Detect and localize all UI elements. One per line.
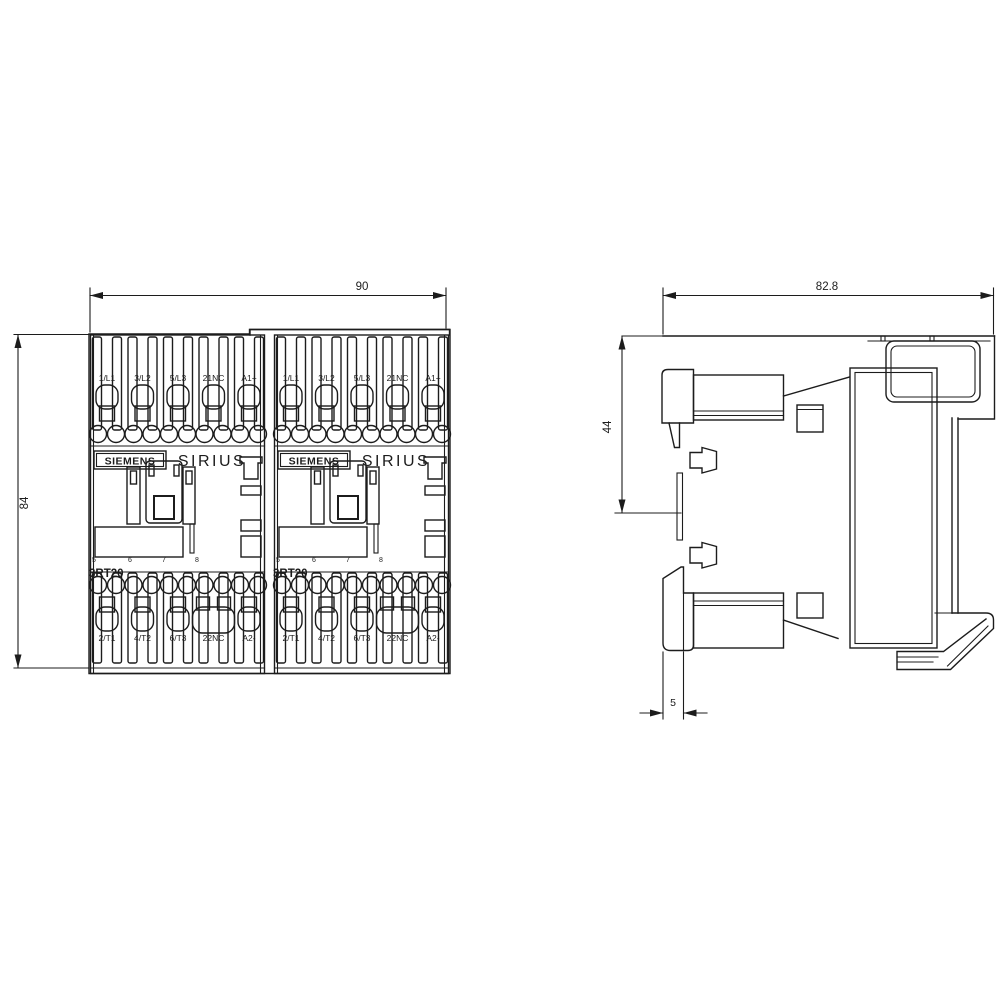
contactor-unit-1: 1/L1 3/L2 5/L3 21NC: [89, 335, 267, 674]
side-view: [662, 336, 995, 670]
terminal-label: 6/T3: [169, 633, 186, 643]
top-terminal-A1plus: A1+: [232, 337, 267, 443]
top-terminal-1L1: 1/L1: [90, 337, 125, 443]
bottom-terminal-A2minus: A2-: [232, 573, 267, 663]
terminal-label: A1+: [241, 373, 256, 383]
top-terminal-21NC: 21NC: [196, 337, 231, 443]
model-text: 3RT20: [89, 568, 124, 580]
dimension-height-84: 84: [14, 335, 88, 669]
pin-number: 7: [162, 557, 166, 564]
dimension-rail-value: 44: [602, 420, 614, 433]
din-clip-upper: [662, 370, 694, 424]
contactor-unit-2: [273, 335, 451, 674]
bottom-terminal-22NC: 22NC: [193, 573, 235, 663]
dimension-depth-value: 82.8: [816, 281, 838, 293]
terminal-label: 3/L2: [134, 373, 151, 383]
dimensions: 90 84 82.8 44 5: [14, 281, 994, 719]
terminal-label: 1/L1: [99, 373, 116, 383]
faceplate: SIEMENS SIRIUS 5 6 7 8: [89, 451, 262, 580]
dimension-foot-5: 5: [640, 652, 707, 719]
pin-number: 6: [128, 557, 132, 564]
top-terminal-5L3: 5/L3: [161, 337, 196, 443]
terminal-label: 5/L3: [170, 373, 187, 383]
side-main-body: [850, 368, 958, 648]
terminal-label: 21NC: [203, 373, 225, 383]
dimension-width-value: 90: [356, 281, 369, 293]
bottom-terminal-2T1: 2/T1: [90, 573, 125, 663]
pin-number: 8: [195, 557, 199, 564]
mounting-plate: [662, 370, 850, 651]
dimension-depth-82.8: 82.8: [663, 281, 994, 334]
terminal-label: 2/T1: [98, 633, 115, 643]
bottom-terminal-4T2: 4/T2: [125, 573, 160, 663]
auxiliary-latch-slots: [127, 461, 195, 553]
bottom-terminal-6T3: 6/T3: [161, 573, 196, 663]
terminal-label: A2-: [242, 633, 255, 643]
mounting-foot: [663, 567, 694, 651]
front-view: 1/L1 3/L2 5/L3 21NC: [89, 330, 451, 674]
pin-number: 5: [92, 557, 96, 564]
dimension-height-value: 84: [19, 496, 31, 509]
dimension-width-90: 90: [90, 281, 446, 332]
arc-cover: [886, 336, 995, 419]
rating-label-plate: [95, 527, 183, 557]
interlock-cover-edge: [250, 330, 450, 336]
terminal-label: 4/T2: [134, 633, 151, 643]
dimension-drawing: 1/L1 3/L2 5/L3 21NC: [0, 0, 1000, 1000]
mounting-peg-upper: [690, 448, 717, 474]
terminal-label: 22NC: [203, 633, 225, 643]
mounting-peg-lower: [690, 543, 717, 569]
top-terminal-3L2: 3/L2: [125, 337, 160, 443]
dimension-drawing-page: 1/L1 3/L2 5/L3 21NC: [0, 0, 1000, 1000]
din-clip-tooth: [669, 423, 680, 448]
dimension-foot-value: 5: [670, 697, 676, 709]
release-wedge: [897, 613, 994, 670]
